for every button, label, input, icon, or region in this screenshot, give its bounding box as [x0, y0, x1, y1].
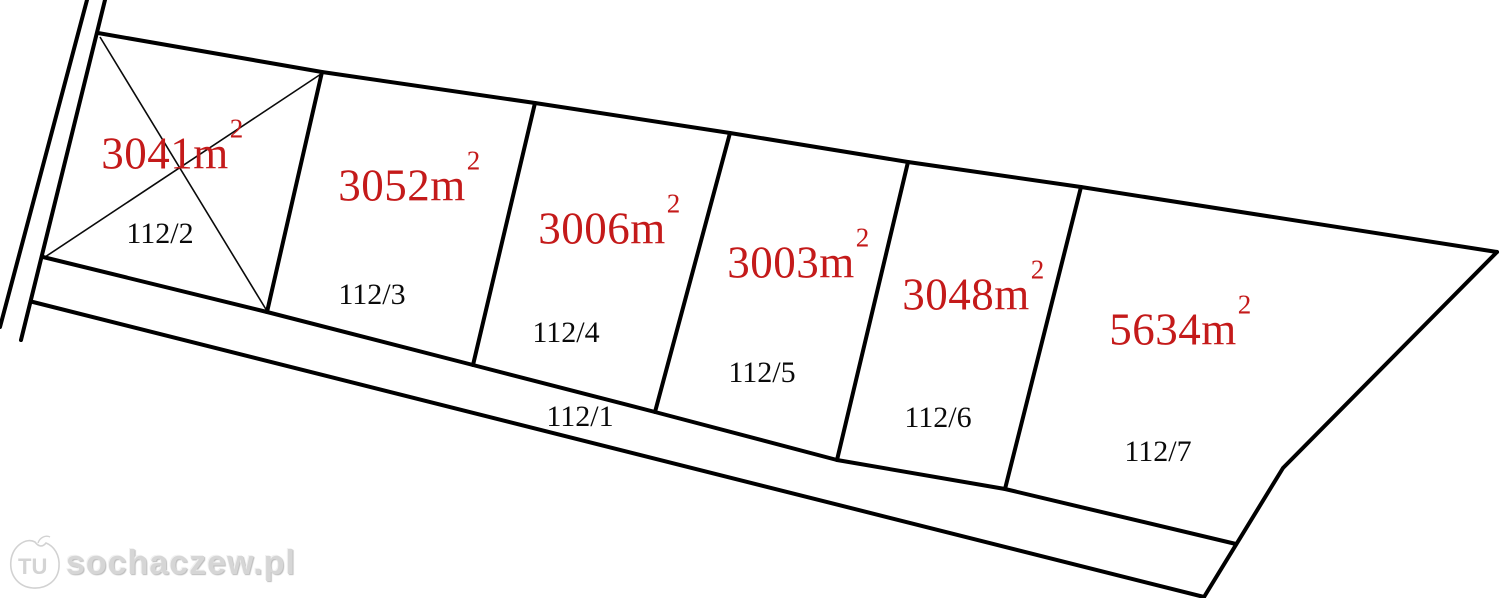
number-label-112-3: 112/3 [338, 280, 405, 310]
number-label-112-1: 112/1 [546, 402, 613, 432]
area-label-112-3: 3052m2 [338, 164, 480, 209]
number-label-112-4: 112/4 [532, 318, 599, 348]
watermark: TU sochaczew.pl [4, 534, 296, 592]
parcel-map: 3041m2 3052m2 3006m2 3003m2 3048m2 5634m… [0, 0, 1500, 598]
number-label-112-5: 112/5 [728, 358, 795, 388]
watermark-site-text: sochaczew.pl [66, 544, 296, 583]
number-label-112-2: 112/2 [126, 219, 193, 249]
number-label-112-6: 112/6 [904, 403, 971, 433]
area-label-112-5: 3003m2 [727, 241, 869, 286]
area-label-112-7: 5634m2 [1109, 308, 1251, 353]
parcel-map-drawing [0, 0, 1500, 598]
svg-text:TU: TU [18, 554, 47, 579]
watermark-logo-icon: TU [4, 534, 64, 592]
number-label-112-7: 112/7 [1124, 437, 1191, 467]
area-label-112-4: 3006m2 [538, 207, 680, 252]
area-label-112-6: 3048m2 [902, 273, 1044, 318]
area-label-112-2: 3041m2 [101, 132, 243, 177]
